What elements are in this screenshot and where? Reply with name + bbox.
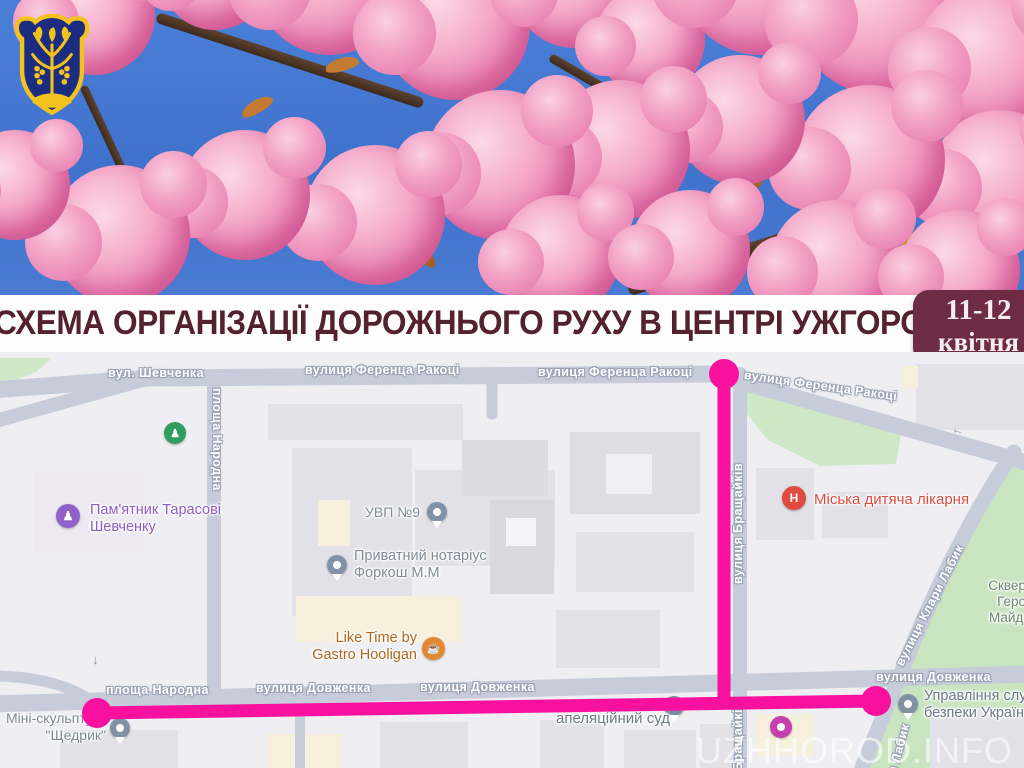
page-title: СХЕМА ОРГАНІЗАЦІЇ ДОРОЖНЬОГО РУХУ В ЦЕНТ… bbox=[0, 304, 968, 343]
title-banner: СХЕМА ОРГАНІЗАЦІЇ ДОРОЖНЬОГО РУХУ В ЦЕНТ… bbox=[0, 295, 1024, 352]
uzhhorod-coat-of-arms-icon bbox=[8, 14, 96, 118]
route-endpoint bbox=[861, 686, 891, 716]
date-badge-days: 11-12 bbox=[913, 293, 1024, 327]
route-endpoint bbox=[709, 359, 739, 389]
watermark: UZHHOROD.INFO bbox=[696, 730, 1013, 768]
traffic-map: вул. Шевченка вулиця Ференца Ракоці вули… bbox=[0, 352, 1024, 768]
route-layer bbox=[0, 352, 1024, 768]
poster: СХЕМА ОРГАНІЗАЦІЇ ДОРОЖНЬОГО РУХУ В ЦЕНТ… bbox=[0, 0, 1024, 768]
blossom-cluster bbox=[630, 190, 750, 295]
blossom-cluster bbox=[305, 145, 445, 285]
route-endpoint bbox=[82, 698, 112, 728]
sakura-photo bbox=[0, 0, 1024, 295]
blossom-cluster bbox=[900, 210, 1020, 295]
leaf bbox=[239, 92, 275, 120]
blossom-cluster bbox=[50, 165, 190, 295]
